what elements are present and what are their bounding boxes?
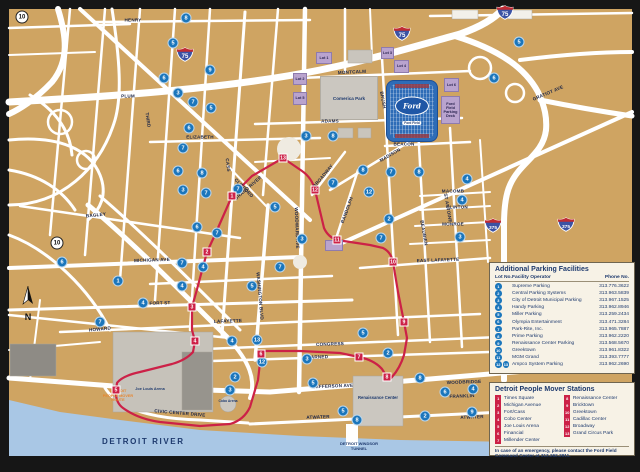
north-arrow-icon	[20, 286, 36, 306]
lot-number-badge: 11	[495, 354, 502, 361]
mover-station-row: 7Millender Center	[495, 437, 560, 444]
renaissance-center	[353, 376, 403, 426]
facility-name: MGM Grand	[512, 355, 589, 360]
station-number-badge: 8	[564, 395, 570, 401]
ford-field-block: Ford Ford Field	[386, 80, 438, 142]
mover-station-row: 6Financial	[495, 430, 560, 437]
mover-station-row: 1Times Square	[495, 395, 560, 402]
station-name: Financial	[504, 431, 524, 436]
phone-number: 313.962.8946	[589, 305, 629, 310]
mover-station-row: 2Michigan Avenue	[495, 402, 560, 409]
lot-number-badge: 8	[495, 333, 502, 340]
detroit-river-label: DETROIT RIVER	[102, 437, 185, 446]
lot-number-cell: 2	[495, 290, 512, 297]
facility-name: Renaissance Center Parking	[512, 341, 589, 346]
phone-number: 313.259.2434	[589, 312, 629, 317]
lot-number-cell: 10	[495, 347, 512, 354]
parking-legend-row: 9Renaissance Center Parking313.568.5670	[495, 340, 629, 347]
station-number-badge: 1	[495, 395, 501, 401]
parking-legend-header: Lot No. Facility Operator Phone No.	[495, 275, 629, 282]
ford-logo: Ford	[395, 97, 429, 116]
parking-legend-row: 2Central Parking Systems313.963.5839	[495, 290, 629, 297]
facility-name: Handy Parking	[512, 305, 589, 310]
lot-number-badge: 13	[503, 361, 510, 368]
compass-n-label: N	[18, 312, 38, 322]
lot-number-cell: 5	[495, 312, 512, 319]
lot-number-badge: 12	[495, 361, 502, 368]
people-mover-route-label: DETROIT PEOPLE MOVER ROUTE	[94, 389, 142, 403]
station-number-badge: 6	[495, 430, 501, 436]
phone-number: 313.776.3622	[589, 284, 629, 289]
facility-name: Prime Parking	[512, 334, 589, 339]
grand-circus-park	[277, 137, 301, 161]
mover-column-right: 8Renaissance Center9Bricktown10Greektown…	[564, 395, 629, 444]
parking-legend-row: 1213Ampco System Parking313.962.2690	[495, 361, 629, 368]
station-name: Millender Center	[504, 438, 540, 443]
lot-number-cell: 1213	[495, 361, 512, 368]
facility-name: Olympia Entertainment	[512, 320, 589, 325]
station-number-badge: 13	[564, 430, 570, 436]
facility-name: Park-Rite, Inc.	[512, 327, 589, 332]
station-name: Michigan Avenue	[504, 403, 541, 408]
mover-station-row: 12Broadway	[564, 423, 629, 430]
facility-name: Ampco System Parking	[512, 362, 589, 367]
station-name: Joe Louis Arena	[504, 424, 539, 429]
phone-number: 313.961.8322	[589, 348, 629, 353]
phone-number: 313.962.2220	[589, 334, 629, 339]
station-number-badge: 11	[564, 416, 570, 422]
lot-number-cell: 6	[495, 319, 512, 326]
facility-name: Miller Parking	[512, 312, 589, 317]
lot-number-cell: 9	[495, 340, 512, 347]
mover-station-row: 10Greektown	[564, 409, 629, 416]
station-name: Bricktown	[573, 403, 594, 408]
lot-number-cell: 8	[495, 333, 512, 340]
parking-legend-row: 1Supreme Parking313.776.3622	[495, 283, 629, 290]
lot-number-cell: 3	[495, 297, 512, 304]
lot-number-badge: 7	[495, 326, 502, 333]
parking-legend-row: 8Prime Parking313.962.2220	[495, 333, 629, 340]
detroit-windsor-tunnel-label: DETROIT WINDSOR TUNNEL	[328, 442, 390, 452]
station-name: Cobo Center	[504, 417, 532, 422]
ford-field-label: Ford Field	[402, 121, 421, 125]
detroit-downtown-parking-map: Comerica Park Ford Ford Field Joe Louis …	[0, 0, 640, 472]
col-facility: Facility Operator	[512, 275, 589, 280]
additional-parking-legend: Additional Parking Facilities Lot No. Fa…	[489, 262, 635, 374]
compass-rose: N	[18, 286, 38, 322]
phone-number: 313.965.7887	[589, 327, 629, 332]
lot-number-badge: 4	[495, 304, 502, 311]
station-name: Times Square	[504, 396, 534, 401]
lot-number-badge: 3	[495, 297, 502, 304]
station-number-badge: 2	[495, 402, 501, 408]
station-name: Broadway	[573, 424, 595, 429]
parking-legend-row: 10Greektown313.961.8322	[495, 347, 629, 354]
lot-number-badge: 6	[495, 319, 502, 326]
parking-legend-row: 3City of Detroit Municipal Parking313.96…	[495, 297, 629, 304]
lot-number-badge: 10	[495, 347, 502, 354]
phone-number: 313.967.1525	[589, 298, 629, 303]
facility-name: Central Parking Systems	[512, 291, 589, 296]
station-number-badge: 7	[495, 437, 501, 443]
mover-station-row: 9Bricktown	[564, 402, 629, 409]
station-number-badge: 9	[564, 402, 570, 408]
mover-station-row: 4Cobo Center	[495, 416, 560, 423]
campus-martius	[293, 255, 307, 269]
station-number-badge: 3	[495, 409, 501, 415]
lot-number-cell: 4	[495, 304, 512, 311]
facility-name: Supreme Parking	[512, 284, 589, 289]
station-name: Fort/Cass	[504, 410, 525, 415]
phone-number: 313.568.5670	[589, 341, 629, 346]
station-name: Grand Circus Park	[573, 431, 613, 436]
parking-legend-row: 6Olympia Entertainment313.471.3284	[495, 318, 629, 325]
mover-station-row: 3Fort/Cass	[495, 409, 560, 416]
parking-legend-row: 5Miller Parking313.259.2434	[495, 311, 629, 318]
parking-legend-row: 4Handy Parking313.962.8946	[495, 304, 629, 311]
parking-legend-row: 7Park-Rite, Inc.313.965.7887	[495, 326, 629, 333]
facility-name: City of Detroit Municipal Parking	[512, 298, 589, 303]
cobo-arena-label: Cobo Arena	[216, 400, 240, 404]
station-number-badge: 12	[564, 423, 570, 429]
station-number-badge: 10	[564, 409, 570, 415]
renaissance-center-label: Renaissance Center	[356, 396, 400, 401]
people-mover-legend: Detroit People Mover Stations 1Times Squ…	[489, 382, 635, 456]
mover-column-left: 1Times Square2Michigan Avenue3Fort/Cass4…	[495, 395, 560, 444]
mover-station-row: 8Renaissance Center	[564, 395, 629, 402]
mover-station-list: 1Times Square2Michigan Avenue3Fort/Cass4…	[495, 395, 629, 444]
joe-louis-arena	[182, 352, 212, 410]
station-name: Greektown	[573, 410, 597, 415]
phone-number: 313.471.3284	[589, 320, 629, 325]
comerica-park-label: Comerica Park	[333, 96, 365, 101]
emergency-note: In case of an emergency, please contact …	[495, 446, 629, 460]
phone-number: 313.963.5839	[589, 291, 629, 296]
mover-legend-title: Detroit People Mover Stations	[495, 386, 629, 393]
mover-station-row: 13Grand Circus Park	[564, 430, 629, 437]
mover-station-row: 5Joe Louis Arena	[495, 423, 560, 430]
parking-legend-title: Additional Parking Facilities	[495, 266, 629, 273]
comerica-park-block: Comerica Park	[320, 76, 378, 120]
facility-name: Greektown	[512, 348, 589, 353]
station-name: Cadillac Center	[573, 417, 606, 422]
lot-number-cell: 1	[495, 283, 512, 290]
lot-number-cell: 11	[495, 354, 512, 361]
col-lot-no: Lot No.	[495, 275, 512, 280]
parking-legend-row: 11MGM Grand313.393.7777	[495, 354, 629, 361]
col-phone: Phone No.	[589, 275, 629, 280]
lot-number-badge: 1	[495, 283, 502, 290]
lot-number-badge: 9	[495, 340, 502, 347]
parking-legend-rows: 1Supreme Parking313.776.36222Central Par…	[495, 283, 629, 368]
station-number-badge: 4	[495, 416, 501, 422]
station-number-badge: 5	[495, 423, 501, 429]
lot-number-cell: 7	[495, 326, 512, 333]
phone-number: 313.962.2690	[589, 362, 629, 367]
station-name: Renaissance Center	[573, 396, 617, 401]
phone-number: 313.393.7777	[589, 355, 629, 360]
lot-number-badge: 5	[495, 312, 502, 319]
lot-number-badge: 2	[495, 290, 502, 297]
mover-station-row: 11Cadillac Center	[564, 416, 629, 423]
